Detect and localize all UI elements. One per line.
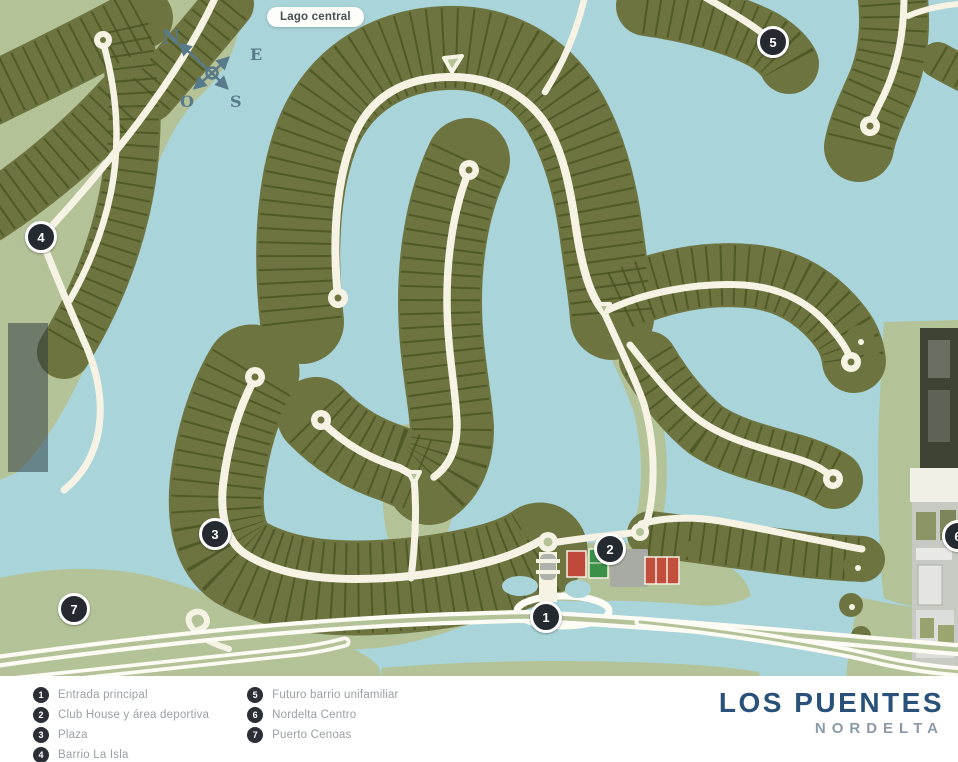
map-canvas: N E O S Lago central 1 2 3 4 5 6 7 1 Ent…	[0, 0, 958, 762]
legend-number-badge: 7	[247, 727, 263, 743]
neighborhood-map: N E O S	[0, 0, 958, 676]
brand-subtitle: NORDELTA	[719, 720, 944, 737]
marker-number: 3	[211, 527, 218, 542]
map-marker-7[interactable]: 7	[58, 593, 90, 625]
legend-item-label: Barrio La Isla	[58, 749, 129, 761]
legend-number-badge: 3	[33, 727, 49, 743]
compass-o: O	[180, 92, 194, 111]
marker-number: 1	[542, 610, 549, 625]
marker-number: 7	[70, 602, 77, 617]
legend-number-badge: 5	[247, 687, 263, 703]
legend: 1 Entrada principal 2 Club House y área …	[33, 687, 399, 762]
compass-e: E	[250, 45, 262, 64]
legend-number-badge: 4	[33, 747, 49, 762]
compass-n: N	[162, 25, 180, 49]
map-marker-2[interactable]: 2	[594, 533, 626, 565]
brand-title: LOS PUENTES	[719, 688, 944, 717]
legend-item: 6 Nordelta Centro	[247, 707, 398, 722]
legend-number-badge: 6	[247, 707, 263, 723]
legend-column-2: 5 Futuro barrio unifamiliar 6 Nordelta C…	[247, 687, 398, 762]
marker-number: 2	[606, 542, 613, 557]
map-marker-3[interactable]: 3	[199, 518, 231, 550]
legend-item: 5 Futuro barrio unifamiliar	[247, 687, 398, 702]
marker-number: 6	[954, 529, 958, 544]
map-marker-5[interactable]: 5	[757, 26, 789, 58]
legend-item: 4 Barrio La Isla	[33, 747, 209, 762]
compass-s: S	[230, 92, 242, 111]
legend-item: 3 Plaza	[33, 727, 209, 742]
legend-column-1: 1 Entrada principal 2 Club House y área …	[33, 687, 209, 762]
branding: LOS PUENTES NORDELTA	[719, 688, 944, 737]
dark-overlay-block	[8, 323, 48, 472]
legend-item-label: Club House y área deportiva	[58, 709, 209, 721]
map-marker-1[interactable]: 1	[530, 601, 562, 633]
legend-item: 7 Puerto Cenoas	[247, 727, 398, 742]
legend-item-label: Plaza	[58, 729, 88, 741]
legend-item: 2 Club House y área deportiva	[33, 707, 209, 722]
legend-item-label: Futuro barrio unifamiliar	[272, 689, 398, 701]
legend-item-label: Nordelta Centro	[272, 709, 356, 721]
map-marker-4[interactable]: 4	[25, 221, 57, 253]
marker-number: 5	[769, 35, 776, 50]
marker-number: 4	[37, 230, 44, 245]
lake-label-badge: Lago central	[267, 7, 364, 27]
legend-item-label: Entrada principal	[58, 689, 148, 701]
legend-item: 1 Entrada principal	[33, 687, 209, 702]
legend-number-badge: 2	[33, 707, 49, 723]
legend-number-badge: 1	[33, 687, 49, 703]
legend-item-label: Puerto Cenoas	[272, 729, 351, 741]
